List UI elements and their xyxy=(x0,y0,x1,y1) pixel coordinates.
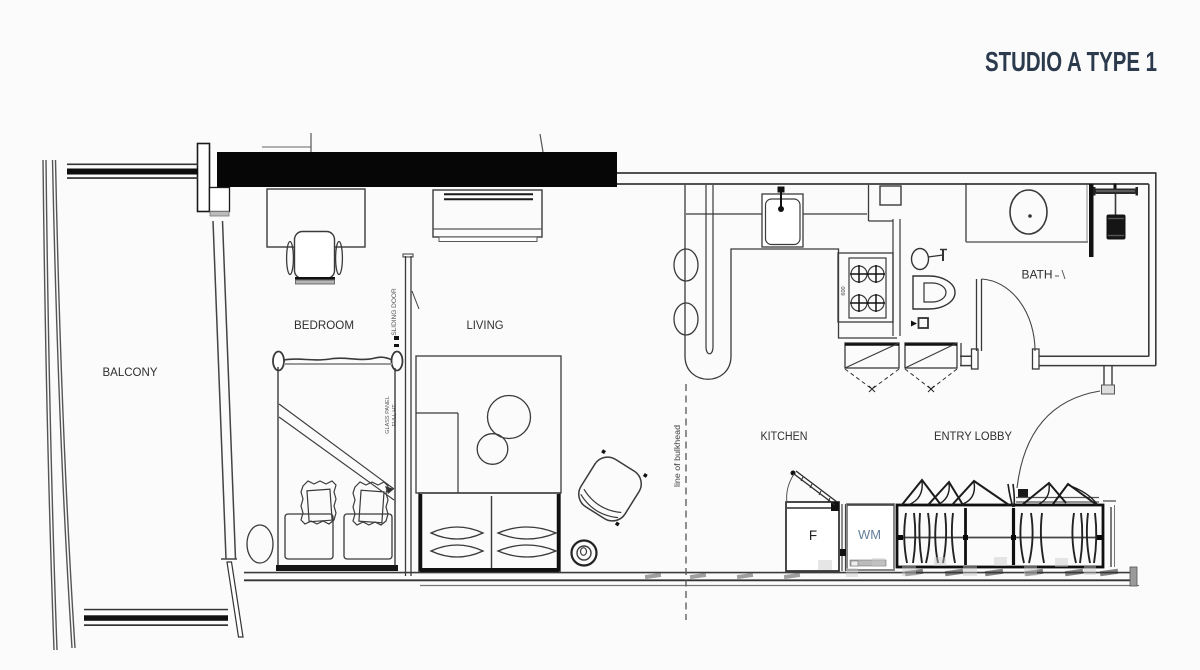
svg-text:WM: WM xyxy=(858,528,881,542)
svg-text:LIVING: LIVING xyxy=(467,320,504,332)
svg-text:BALCONY: BALCONY xyxy=(103,367,158,379)
svg-text:GLASS PANEL: GLASS PANEL xyxy=(385,396,391,434)
svg-text:BEDROOM: BEDROOM xyxy=(294,320,354,332)
svg-text:KITCHEN: KITCHEN xyxy=(761,431,808,443)
svg-text:line of bulkhead: line of bulkhead xyxy=(673,425,682,487)
svg-text:F: F xyxy=(809,528,817,543)
svg-text:BATH: BATH xyxy=(1022,270,1053,282)
svg-text:600: 600 xyxy=(841,286,847,295)
svg-text:ENTRY LOBBY: ENTRY LOBBY xyxy=(934,431,1012,443)
svg-text:STUDIO A TYPE 1: STUDIO A TYPE 1 xyxy=(985,46,1157,77)
svg-text:FULL HT.: FULL HT. xyxy=(392,403,398,426)
svg-text:SLIDING DOOR: SLIDING DOOR xyxy=(391,288,398,336)
